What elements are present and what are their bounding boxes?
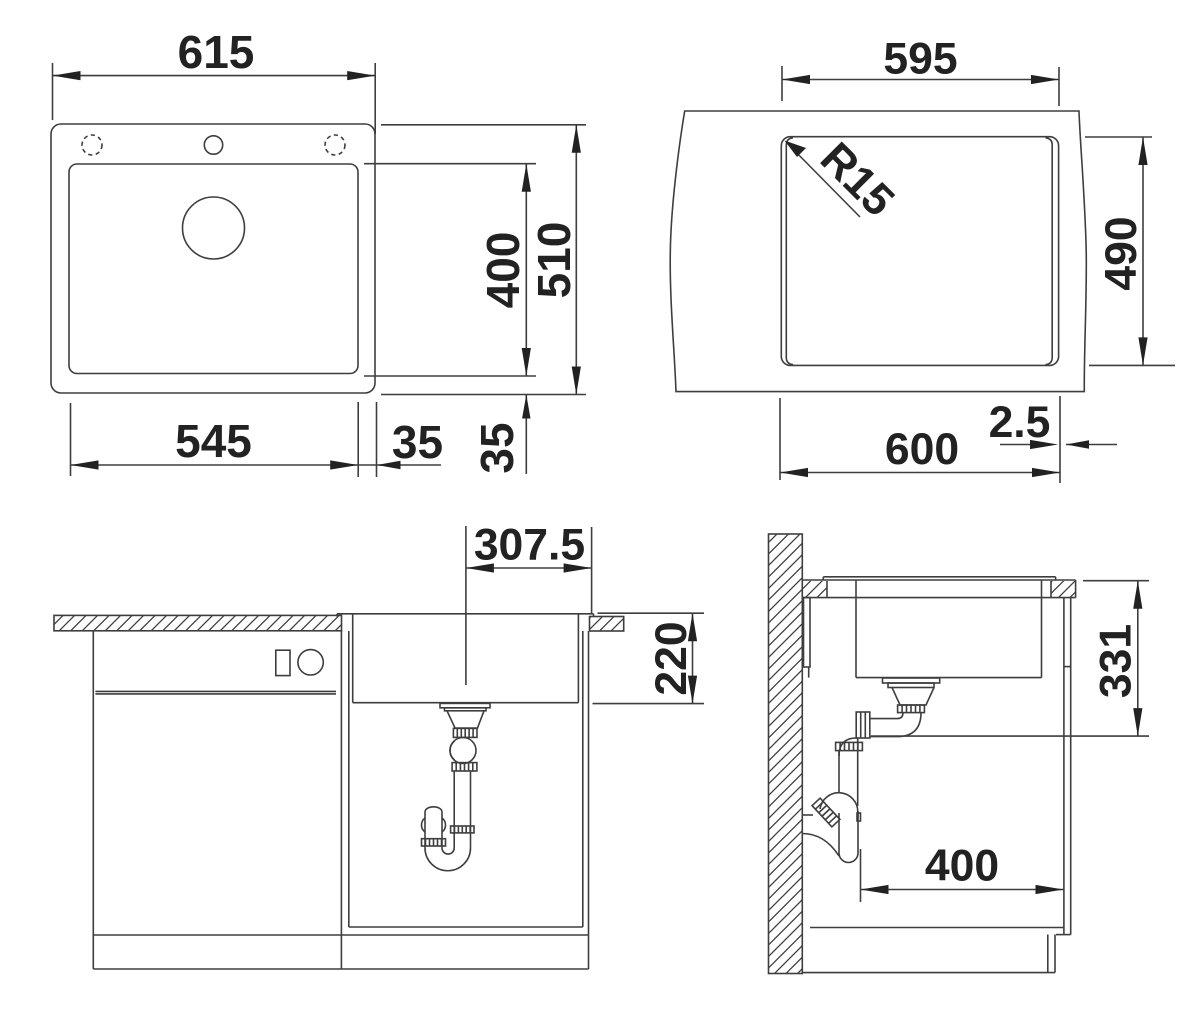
svg-text:595: 595 xyxy=(883,35,957,84)
svg-text:615: 615 xyxy=(178,26,255,78)
svg-text:331: 331 xyxy=(1092,624,1141,698)
svg-text:400: 400 xyxy=(477,232,529,309)
svg-text:35: 35 xyxy=(392,416,443,468)
svg-text:2.5: 2.5 xyxy=(989,398,1051,447)
svg-text:307.5: 307.5 xyxy=(474,521,585,570)
svg-text:35: 35 xyxy=(471,422,523,473)
svg-text:220: 220 xyxy=(647,621,696,695)
svg-text:510: 510 xyxy=(528,222,580,299)
svg-text:400: 400 xyxy=(925,842,999,891)
svg-text:490: 490 xyxy=(1097,216,1146,290)
svg-text:545: 545 xyxy=(175,415,252,467)
svg-text:600: 600 xyxy=(885,425,959,474)
